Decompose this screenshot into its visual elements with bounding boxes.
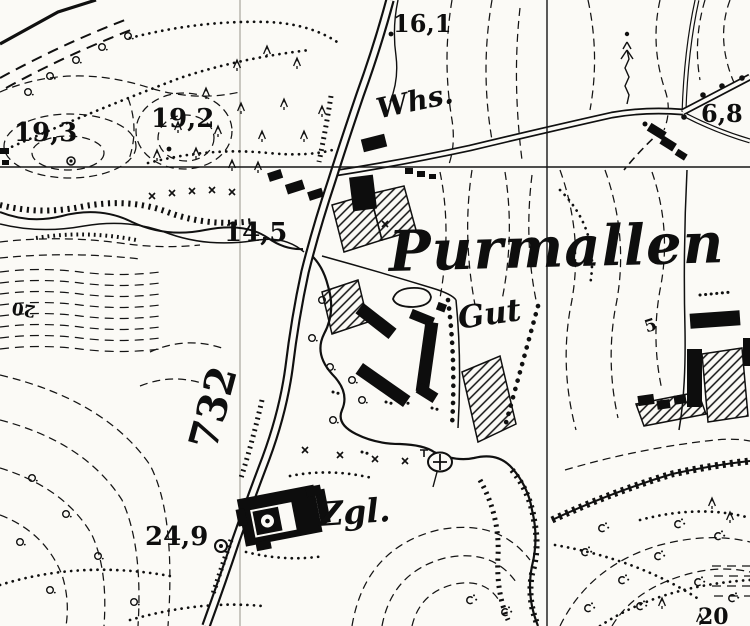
elevation-label-161: 16,1 <box>393 12 451 36</box>
elevation-label-68: 6,8 <box>701 102 743 126</box>
contour-label-20-bottom: 20 <box>698 606 729 626</box>
place-label-purmallen: Purmallen <box>388 215 725 280</box>
lone-tree-icon <box>621 32 633 104</box>
benchmark-icon <box>215 540 227 552</box>
place-label-gut: Gut <box>456 295 523 335</box>
elevation-label-192: 19,2 <box>151 106 214 132</box>
contour-label-20-left: 20 <box>11 298 37 318</box>
place-label-ziegelei: Zgl. <box>318 493 391 531</box>
pond-outline <box>393 288 431 307</box>
tree-row-beads <box>333 292 732 454</box>
chapel-icon <box>428 453 452 488</box>
hedge-toothed-line <box>552 461 750 520</box>
elevation-label-193: 19,3 <box>14 120 77 146</box>
map-canvas: Purmallen Gut Whs. Zgl. 16,1 19,3 19,2 1… <box>0 0 750 626</box>
elevation-label-249: 24,9 <box>145 524 208 550</box>
elevation-label-145: 14,5 <box>224 220 287 246</box>
